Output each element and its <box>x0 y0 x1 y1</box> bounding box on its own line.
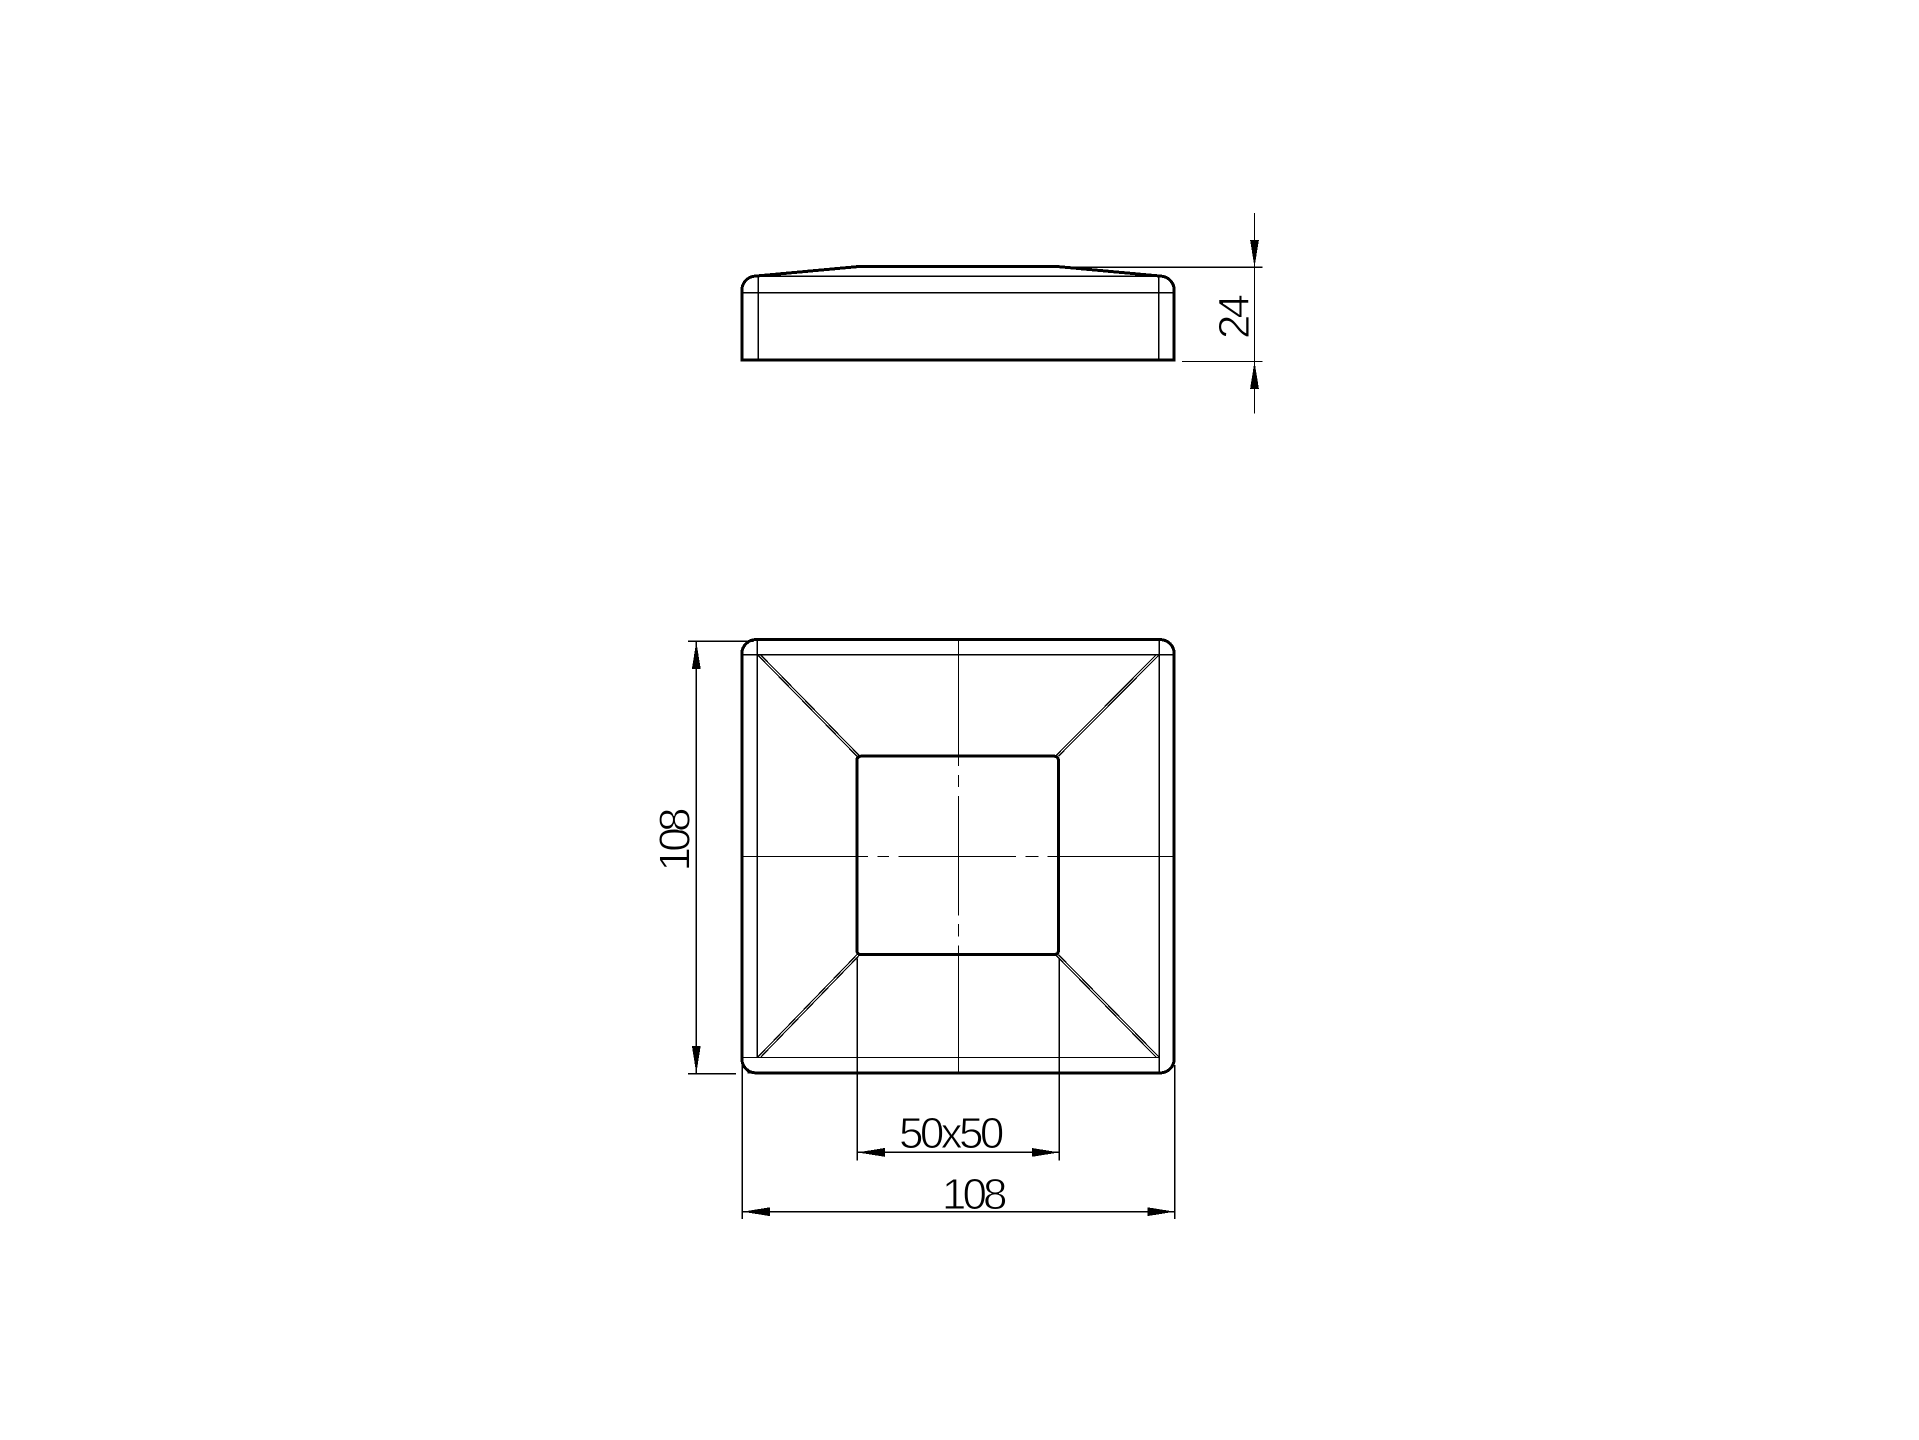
svg-text:24: 24 <box>1210 294 1259 339</box>
svg-text:108: 108 <box>942 1170 1008 1219</box>
svg-text:108: 108 <box>651 808 700 872</box>
svg-text:50x50: 50x50 <box>899 1109 1004 1158</box>
